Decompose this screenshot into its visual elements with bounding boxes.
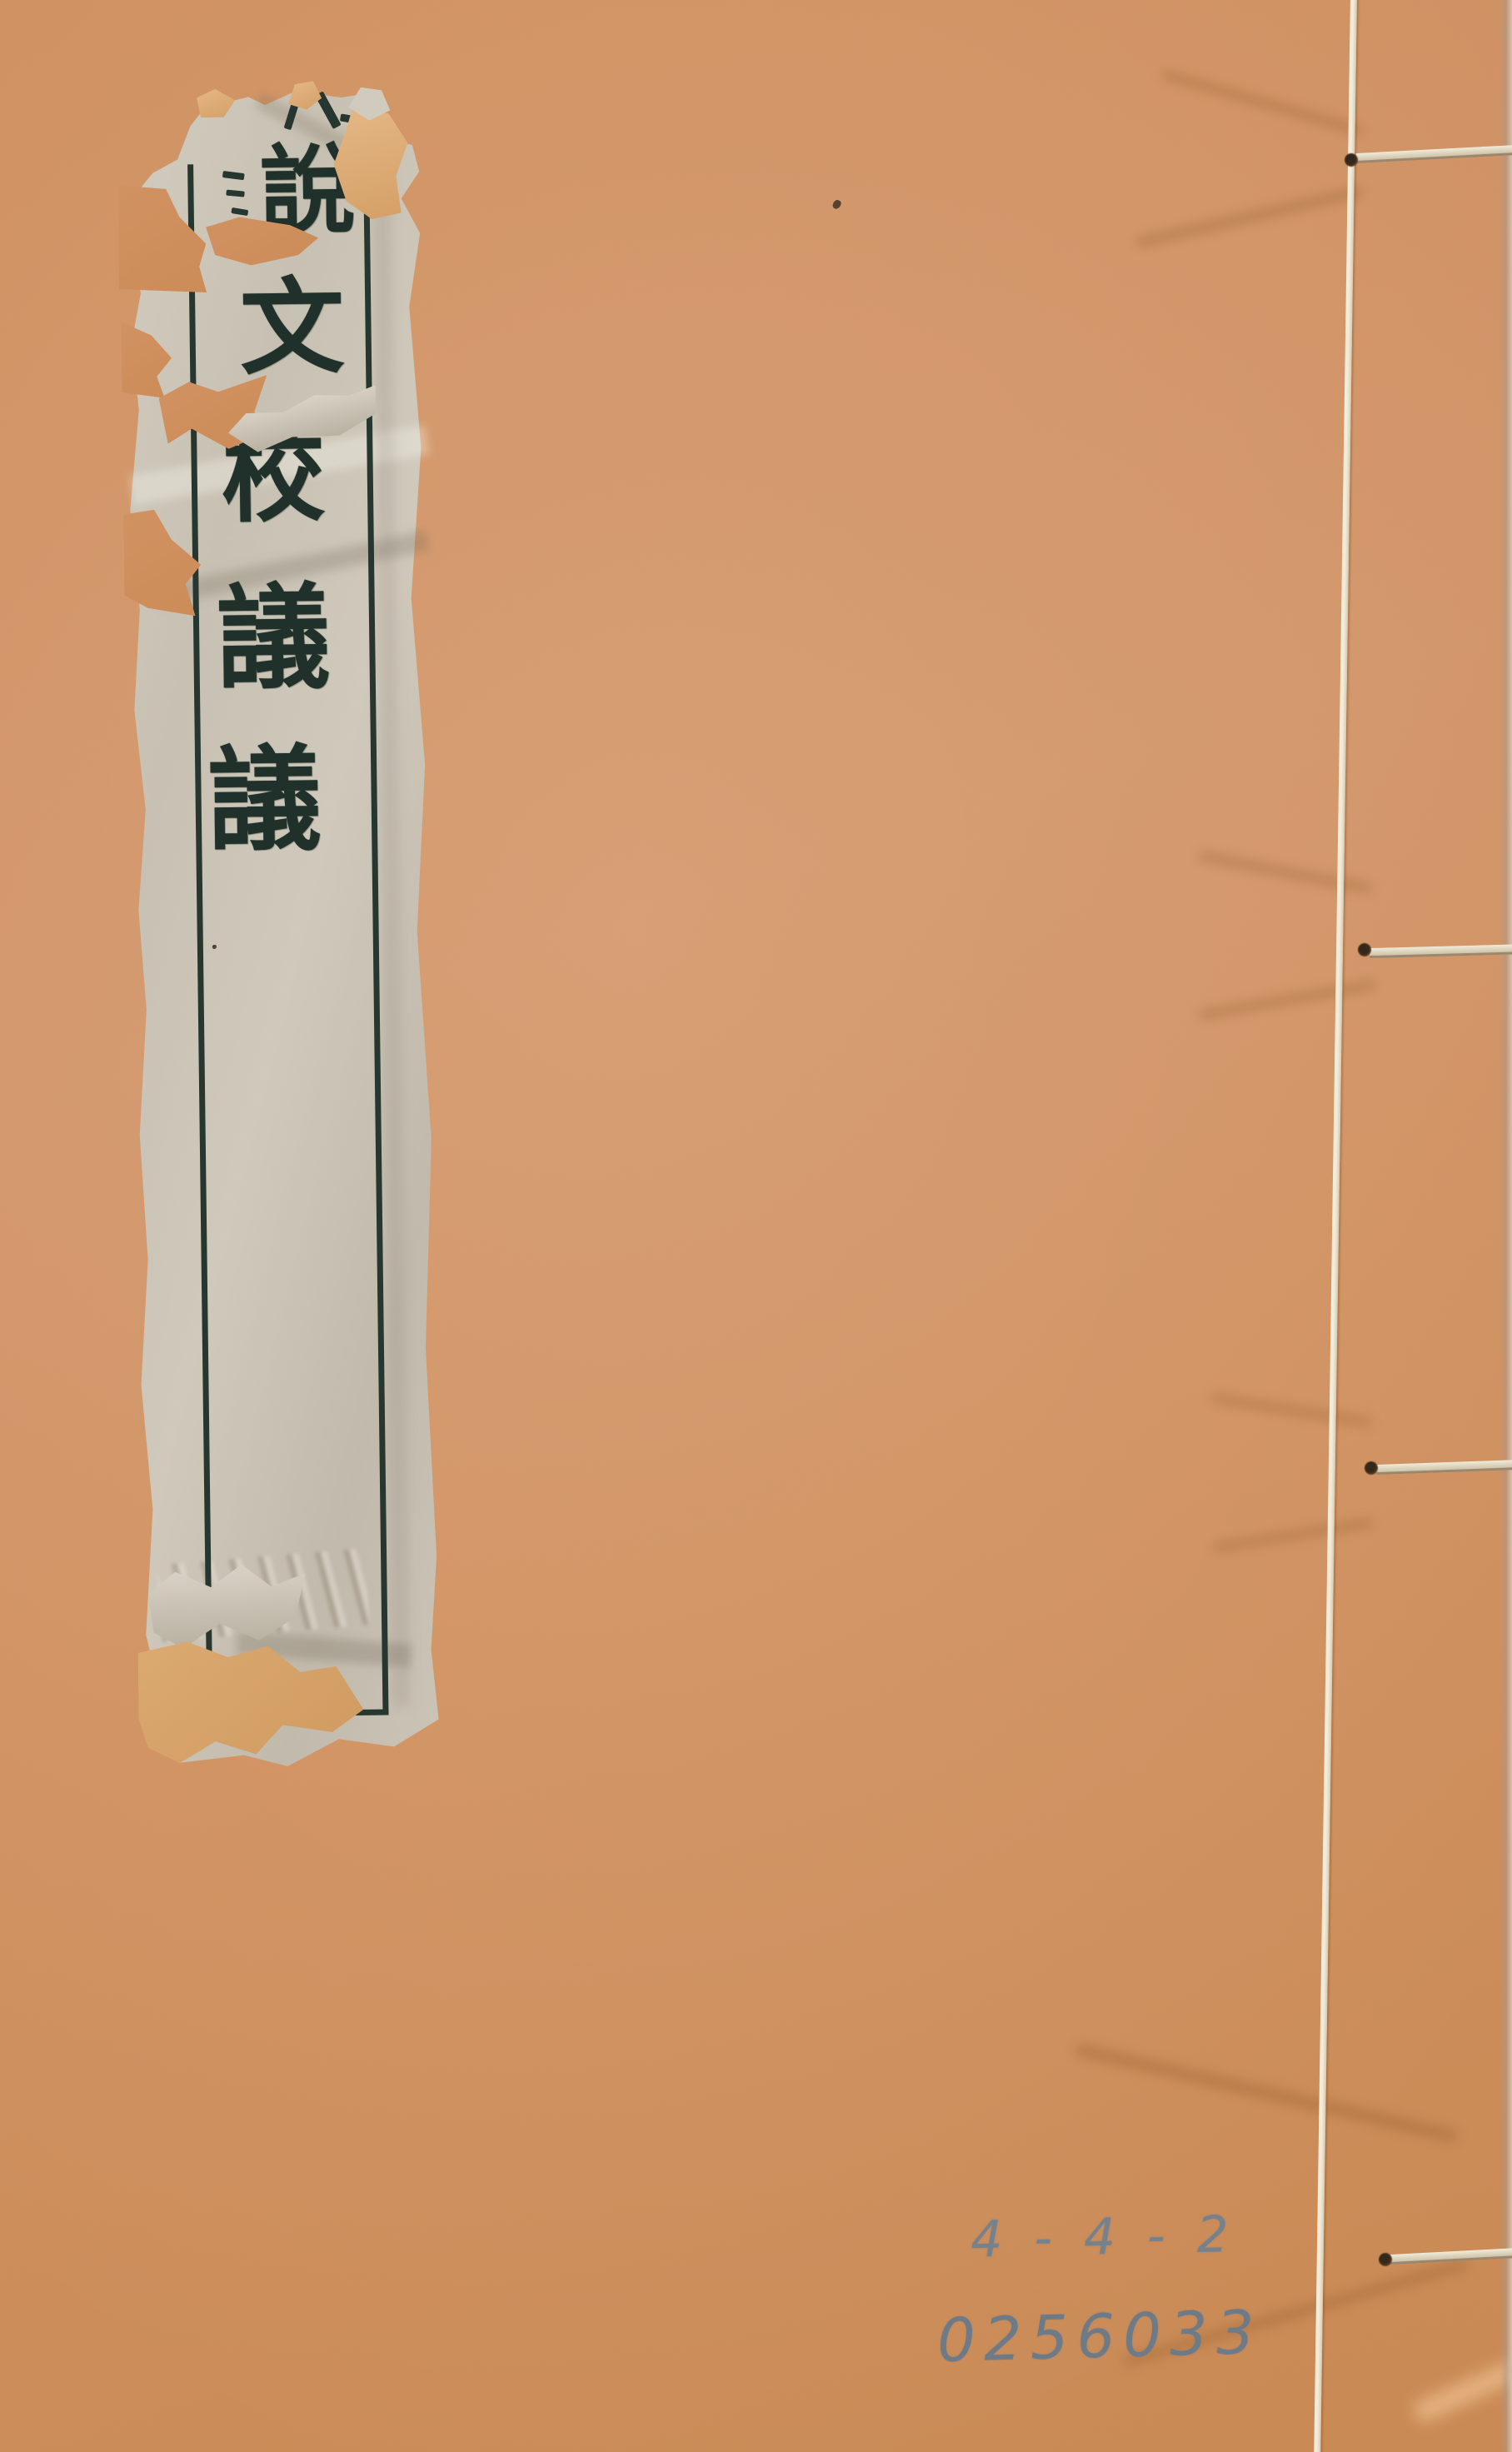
- stitch-hole: [1365, 1461, 1378, 1475]
- stitch-hole: [1358, 943, 1371, 956]
- stitch-hole: [1345, 153, 1358, 167]
- title-character-2: 文: [221, 276, 364, 382]
- stitch-hole: [1379, 2253, 1392, 2266]
- pencil-accession-number: 0256033: [936, 2297, 1264, 2375]
- cover-edge-strip: [1499, 0, 1512, 2452]
- title-label: 說 文 校 議 議: [125, 90, 446, 1768]
- title-character-5: 議: [193, 742, 337, 857]
- book-cover-scan: 說 文 校 議 議 4-4-2 0256033: [0, 0, 1512, 2452]
- pencil-call-number: 4-4-2: [970, 2205, 1260, 2269]
- title-character-4: 議: [202, 581, 345, 696]
